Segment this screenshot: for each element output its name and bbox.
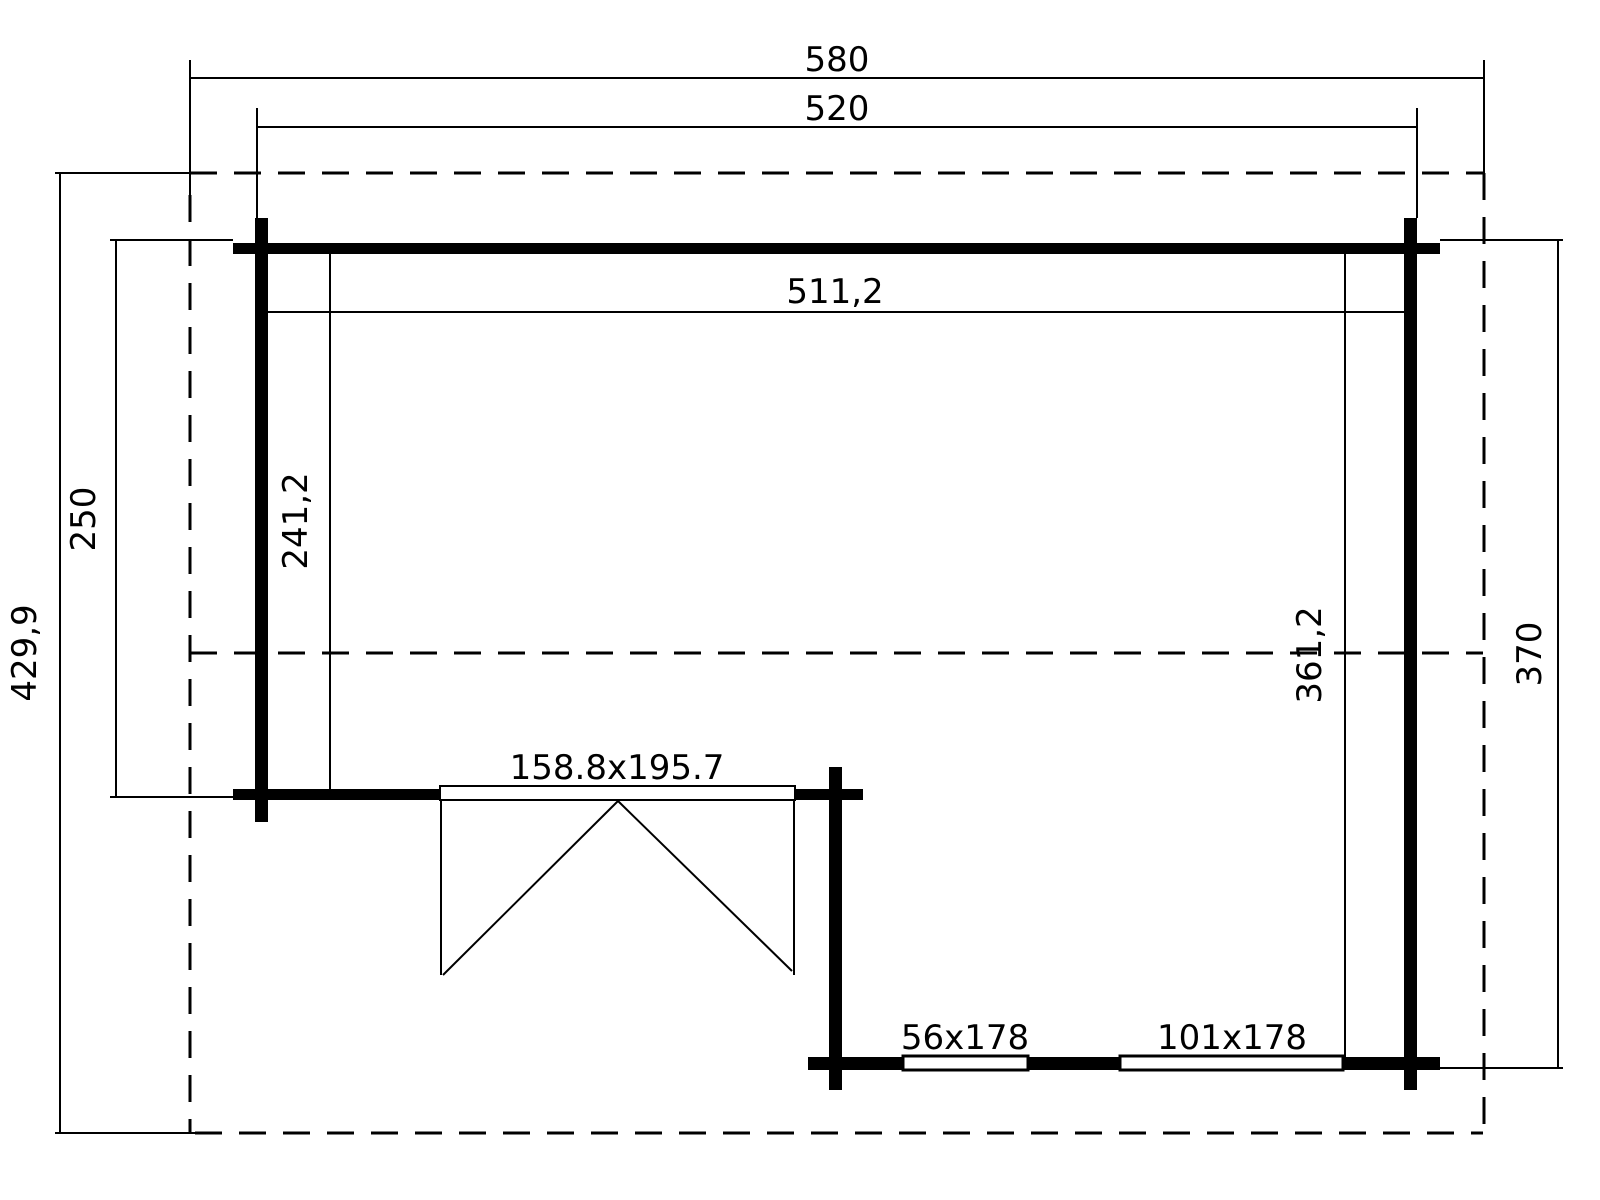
window-large-label: 101x178 — [1157, 1018, 1307, 1058]
wall-left — [255, 218, 268, 822]
dim-label-left-wall-depth: 250 — [64, 487, 104, 552]
wall-door-left — [233, 789, 443, 800]
window-small — [903, 1056, 1028, 1070]
dim-label-inner-width: 511,2 — [786, 272, 883, 312]
wall-top — [233, 243, 1440, 254]
door-leaf-left-swing — [443, 801, 618, 975]
wall-bottom-right — [1341, 1057, 1440, 1070]
dim-label-roof-width: 580 — [805, 40, 870, 80]
window-small-label: 56x178 — [901, 1018, 1029, 1058]
door-leaf-right-swing — [618, 801, 792, 971]
wall-bottom-mid — [1026, 1057, 1122, 1070]
labels-group: 580520511,2429,9250241,2361,2370158.8x19… — [5, 40, 1550, 1058]
floor-plan-page: 580520511,2429,9250241,2361,2370158.8x19… — [0, 0, 1600, 1200]
floor-plan-svg: 580520511,2429,9250241,2361,2370158.8x19… — [0, 0, 1600, 1200]
dim-label-right-wall-depth: 370 — [1510, 622, 1550, 687]
dim-label-roof-depth: 429,9 — [5, 604, 45, 701]
wall-right — [1404, 218, 1417, 1090]
dimension-lines-group — [55, 60, 1563, 1133]
window-large — [1120, 1056, 1343, 1070]
dim-label-inner-depth-left: 241,2 — [276, 472, 316, 569]
dim-label-inner-depth-right: 361,2 — [1290, 606, 1330, 703]
wall-bottom-left-stub — [808, 1057, 905, 1070]
dim-label-outer-width: 520 — [805, 89, 870, 129]
wall-door-right — [790, 789, 863, 800]
door-size-label: 158.8x195.7 — [510, 748, 725, 788]
wall-mid-post — [829, 767, 842, 1090]
door-frame — [440, 786, 795, 800]
